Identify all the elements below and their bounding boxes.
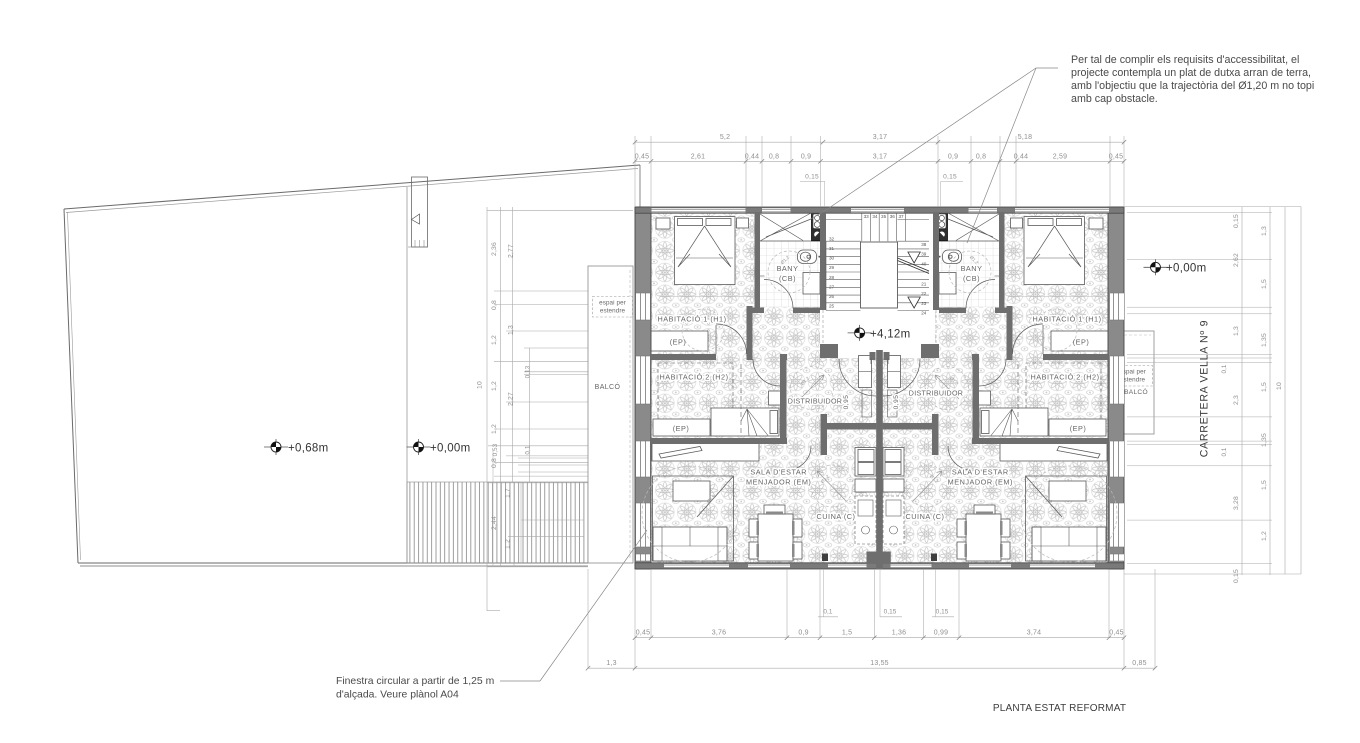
svg-text:0,9: 0,9 — [801, 153, 811, 160]
svg-text:0,15: 0,15 — [943, 174, 957, 181]
svg-text:0,8: 0,8 — [769, 153, 779, 160]
svg-text:0,1: 0,1 — [1221, 364, 1228, 373]
svg-text:CARRETERA VELLA Nº 9: CARRETERA VELLA Nº 9 — [1199, 320, 1211, 457]
svg-text:29: 29 — [829, 265, 835, 270]
svg-text:36: 36 — [890, 214, 896, 219]
svg-text:37: 37 — [898, 214, 904, 219]
svg-text:MENJADOR (EM): MENJADOR (EM) — [948, 478, 1013, 487]
svg-text:3,74: 3,74 — [1027, 630, 1041, 637]
svg-text:2,27: 2,27 — [508, 392, 515, 406]
svg-text:amb l'objectiu que la trajectò: amb l'objectiu que la trajectòria del Ø1… — [1071, 80, 1314, 92]
svg-text:0,15: 0,15 — [805, 174, 819, 181]
svg-text:HABITACIÓ 1 (H1): HABITACIÓ 1 (H1) — [657, 315, 726, 324]
svg-text:0,44: 0,44 — [1014, 153, 1028, 160]
svg-text:0,8: 0,8 — [491, 458, 498, 468]
svg-text:0,45: 0,45 — [635, 153, 649, 160]
svg-text:1,2: 1,2 — [491, 381, 498, 391]
svg-text:5,2: 5,2 — [720, 134, 730, 141]
svg-text:0,8: 0,8 — [491, 300, 498, 310]
svg-text:BANY: BANY — [777, 264, 799, 273]
svg-text:1,36: 1,36 — [892, 630, 906, 637]
svg-text:+0,00m: +0,00m — [430, 443, 470, 455]
svg-text:MENJADOR (EM): MENJADOR (EM) — [746, 478, 811, 487]
svg-text:33: 33 — [864, 214, 870, 219]
svg-text:1,5: 1,5 — [1261, 279, 1268, 289]
svg-text:2,61: 2,61 — [691, 153, 705, 160]
svg-text:HABITACIÓ 1 (H1): HABITACIÓ 1 (H1) — [1032, 315, 1101, 324]
svg-text:0,1: 0,1 — [1221, 447, 1228, 456]
svg-text:27: 27 — [829, 284, 835, 289]
svg-text:d'alçada. Veure plànol A04: d'alçada. Veure plànol A04 — [336, 690, 459, 701]
svg-text:HABITACIÓ 2 (H2): HABITACIÓ 2 (H2) — [1030, 373, 1099, 382]
svg-text:(EP): (EP) — [1073, 338, 1090, 347]
svg-text:projecte contempla un plat de: projecte contempla un plat de dutxa arra… — [1071, 67, 1311, 79]
svg-text:estendre: estendre — [600, 308, 626, 315]
svg-text:10: 10 — [477, 381, 484, 389]
svg-text:1,2: 1,2 — [491, 335, 498, 345]
svg-text:26: 26 — [829, 294, 835, 299]
svg-text:31: 31 — [829, 246, 835, 251]
svg-text:30: 30 — [829, 256, 835, 261]
svg-text:0,95: 0,95 — [893, 395, 900, 410]
svg-text:0,45: 0,45 — [1109, 630, 1123, 637]
svg-text:24: 24 — [921, 311, 927, 316]
svg-text:0,95: 0,95 — [843, 395, 850, 410]
svg-text:SALA D'ESTAR: SALA D'ESTAR — [952, 468, 1009, 477]
svg-text:0,85: 0,85 — [1132, 660, 1146, 667]
svg-text:0,99: 0,99 — [934, 630, 948, 637]
svg-text:1,2: 1,2 — [504, 539, 511, 549]
svg-text:Finestra circular a partir de: Finestra circular a partir de 1,25 m — [336, 676, 494, 687]
svg-text:34: 34 — [872, 214, 878, 219]
svg-text:+0,00m: +0,00m — [1166, 263, 1206, 275]
svg-text:21: 21 — [921, 282, 927, 287]
svg-text:2,59: 2,59 — [1053, 153, 1067, 160]
svg-text:DISTRIBUIDOR: DISTRIBUIDOR — [909, 390, 963, 398]
svg-text:2,77: 2,77 — [508, 244, 515, 258]
svg-text:2,36: 2,36 — [491, 242, 498, 256]
svg-text:3,28: 3,28 — [1233, 496, 1240, 510]
svg-text:1,35: 1,35 — [1261, 333, 1268, 347]
svg-text:1,5: 1,5 — [842, 630, 852, 637]
svg-text:39: 39 — [921, 252, 927, 257]
svg-text:28: 28 — [829, 275, 835, 280]
svg-text:(EP): (EP) — [673, 424, 690, 433]
svg-text:1,5: 1,5 — [1261, 480, 1268, 490]
svg-text:0,15: 0,15 — [936, 609, 949, 616]
svg-text:23: 23 — [921, 301, 927, 306]
svg-text:0,45: 0,45 — [636, 630, 650, 637]
svg-text:DISTRIBUIDOR: DISTRIBUIDOR — [788, 398, 842, 406]
svg-text:1,3: 1,3 — [508, 325, 515, 335]
svg-text:0,45: 0,45 — [1109, 153, 1123, 160]
svg-text:0,1: 0,1 — [823, 609, 833, 616]
svg-text:(EP): (EP) — [1070, 424, 1087, 433]
svg-text:2,3: 2,3 — [1233, 395, 1240, 405]
svg-text:SALA D'ESTAR: SALA D'ESTAR — [750, 468, 807, 477]
svg-text:HABITACIÓ 2 (H2): HABITACIÓ 2 (H2) — [659, 373, 728, 382]
svg-text:2,62: 2,62 — [1233, 253, 1240, 267]
svg-text:3,76: 3,76 — [712, 630, 726, 637]
svg-text:5,18: 5,18 — [1018, 134, 1032, 141]
svg-text:35: 35 — [881, 214, 887, 219]
svg-text:1,35: 1,35 — [1261, 433, 1268, 447]
svg-text:0,53: 0,53 — [492, 443, 499, 456]
svg-text:1,7: 1,7 — [504, 488, 511, 498]
svg-text:1,2: 1,2 — [491, 424, 498, 434]
svg-text:3,17: 3,17 — [873, 134, 887, 141]
svg-text:40: 40 — [921, 261, 927, 266]
svg-text:0,9: 0,9 — [798, 630, 808, 637]
svg-text:CUINA (C): CUINA (C) — [817, 512, 856, 521]
svg-text:25: 25 — [829, 303, 835, 308]
svg-text:Per tal de complir els requisi: Per tal de complir els requisits d'acces… — [1071, 54, 1299, 66]
svg-text:BALCÓ: BALCÓ — [1124, 387, 1148, 396]
svg-text:(CB): (CB) — [963, 274, 980, 283]
svg-text:13,55: 13,55 — [870, 660, 889, 667]
svg-text:BALCÓ: BALCÓ — [595, 382, 621, 391]
svg-text:0,8: 0,8 — [976, 153, 986, 160]
svg-text:1,3: 1,3 — [1261, 226, 1268, 236]
svg-text:0,13: 0,13 — [525, 365, 532, 378]
svg-text:0,15: 0,15 — [1233, 569, 1240, 583]
svg-text:1,3: 1,3 — [1233, 326, 1240, 336]
svg-text:(CB): (CB) — [779, 274, 796, 283]
svg-text:32: 32 — [829, 237, 835, 242]
svg-text:2,44: 2,44 — [491, 516, 498, 530]
svg-text:3,17: 3,17 — [873, 153, 887, 160]
svg-text:1,5: 1,5 — [1261, 382, 1268, 392]
svg-text:+0,68m: +0,68m — [288, 443, 328, 455]
svg-text:0,15: 0,15 — [884, 609, 897, 616]
svg-text:BANY: BANY — [961, 264, 983, 273]
svg-text:22: 22 — [921, 291, 927, 296]
svg-text:0,44: 0,44 — [745, 153, 759, 160]
svg-text:+4,12m: +4,12m — [870, 328, 910, 340]
svg-text:espai per: espai per — [599, 300, 626, 307]
svg-text:CUINA (C): CUINA (C) — [906, 512, 945, 521]
svg-text:1,3: 1,3 — [606, 660, 616, 667]
svg-text:0,15: 0,15 — [1233, 214, 1240, 228]
svg-text:(EP): (EP) — [670, 338, 687, 347]
svg-text:10: 10 — [1276, 382, 1283, 390]
svg-text:PLANTA ESTAT REFORMAT: PLANTA ESTAT REFORMAT — [993, 703, 1126, 714]
svg-text:amb cap obstacle.: amb cap obstacle. — [1071, 93, 1158, 105]
svg-text:0,9: 0,9 — [948, 153, 958, 160]
svg-text:1,2: 1,2 — [1261, 531, 1268, 541]
svg-text:38: 38 — [921, 242, 927, 247]
svg-text:0,1: 0,1 — [525, 445, 532, 455]
